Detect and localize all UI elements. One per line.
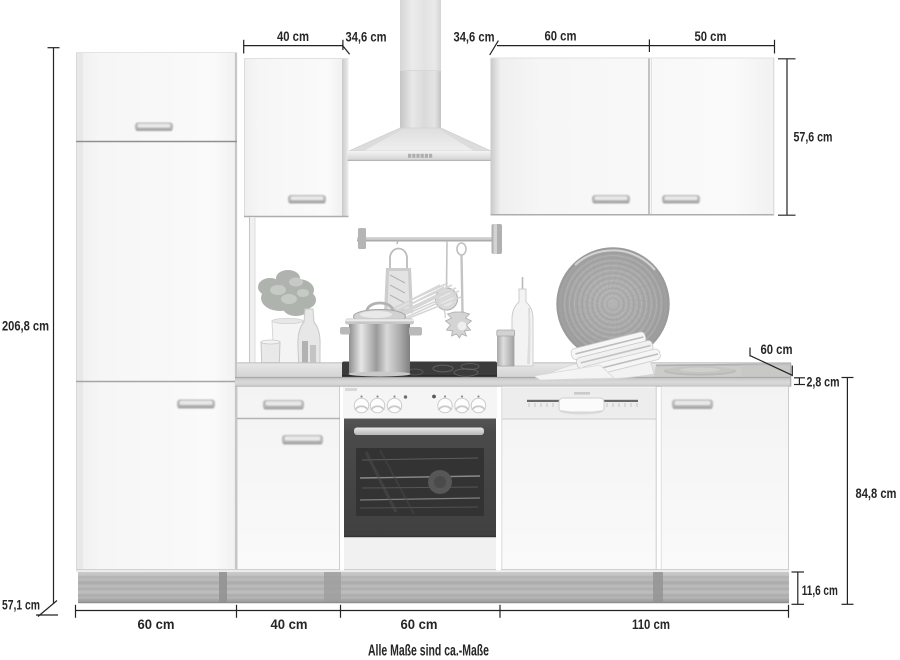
svg-text:34,6 cm: 34,6 cm	[346, 29, 387, 45]
svg-text:57,6 cm: 57,6 cm	[794, 130, 833, 145]
svg-text:50 cm: 50 cm	[695, 28, 727, 44]
svg-text:34,6 cm: 34,6 cm	[454, 29, 495, 45]
svg-text:57,1 cm: 57,1 cm	[2, 598, 40, 613]
svg-text:60 cm: 60 cm	[761, 341, 793, 357]
svg-text:206,8 cm: 206,8 cm	[2, 319, 49, 334]
svg-text:60 cm: 60 cm	[545, 28, 577, 44]
svg-text:2,8 cm: 2,8 cm	[807, 375, 840, 390]
svg-text:11,6 cm: 11,6 cm	[802, 583, 838, 598]
svg-text:84,8 cm: 84,8 cm	[856, 486, 897, 501]
svg-text:40 cm: 40 cm	[271, 616, 308, 632]
svg-text:40 cm: 40 cm	[277, 28, 309, 44]
svg-text:Alle Maße sind ca.-Maße: Alle Maße sind ca.-Maße	[368, 643, 489, 660]
svg-text:60 cm: 60 cm	[401, 616, 438, 632]
svg-text:110 cm: 110 cm	[632, 616, 670, 632]
svg-text:60 cm: 60 cm	[138, 616, 175, 632]
